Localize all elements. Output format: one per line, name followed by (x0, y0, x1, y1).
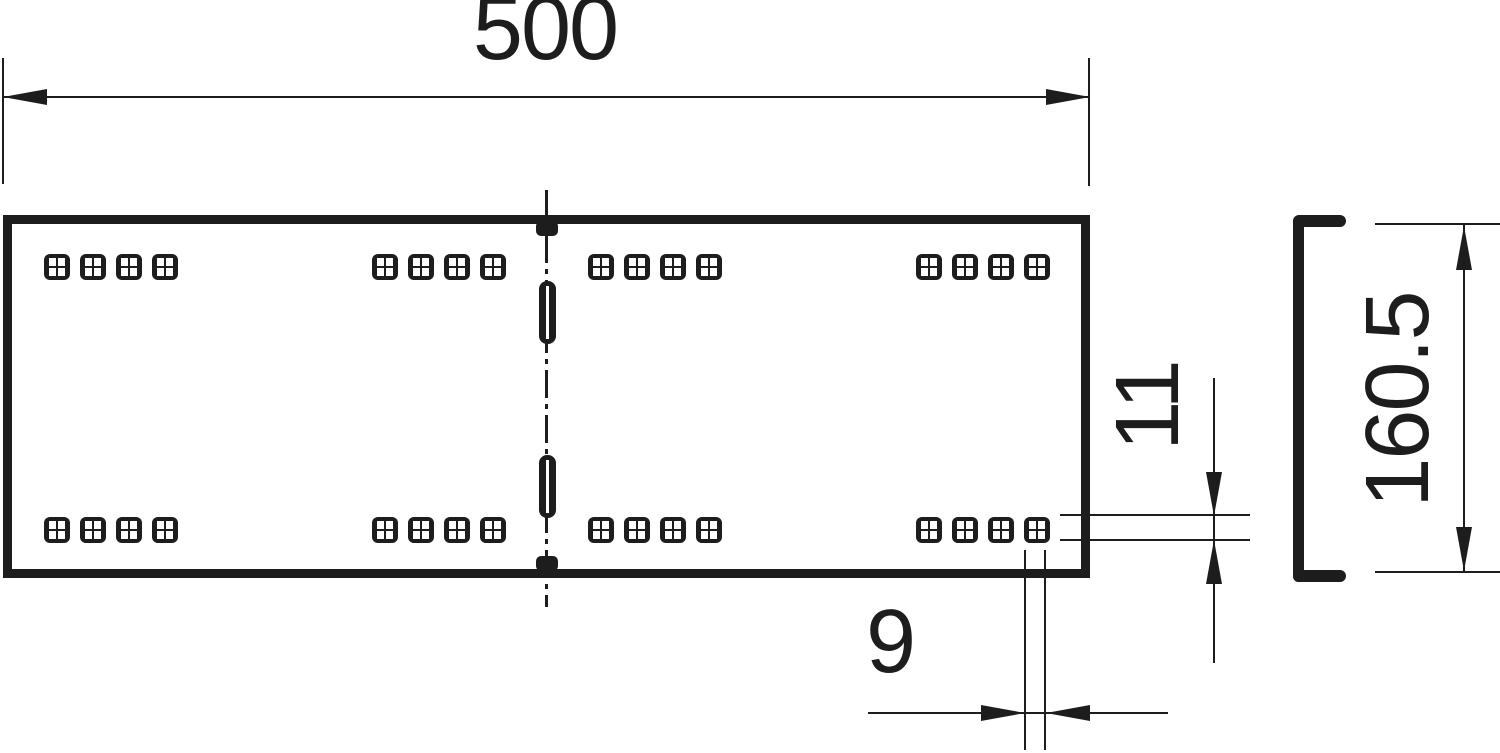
square-perforation (1024, 254, 1050, 280)
square-perforation (480, 517, 506, 543)
joint-centerline (545, 190, 548, 607)
arrowhead-right-icon (1046, 89, 1090, 105)
square-perforation (44, 254, 70, 280)
joint-slot (539, 281, 556, 344)
square-perforation (372, 254, 398, 280)
square-perforation (116, 254, 142, 280)
dimension-line-11 (1213, 378, 1215, 663)
square-perforation (916, 517, 942, 543)
square-perforation (660, 517, 686, 543)
extension-line-9-right (1044, 550, 1046, 750)
side-profile-flange-top (1293, 215, 1346, 227)
square-perforation (444, 517, 470, 543)
square-perforation (80, 254, 106, 280)
square-perforation (116, 517, 142, 543)
arrowhead-down-icon (1456, 527, 1472, 571)
square-perforation (624, 517, 650, 543)
dimension-line-160 (1463, 225, 1465, 572)
dimension-label-9: 9 (855, 597, 925, 687)
arrowhead-up-icon (1206, 540, 1222, 584)
square-perforation (1024, 517, 1050, 543)
square-perforation (588, 517, 614, 543)
seam-tab-top (536, 221, 558, 236)
square-perforation (372, 517, 398, 543)
square-perforation (408, 254, 434, 280)
dimension-label-11: 11 (1103, 346, 1193, 466)
dimension-label-500: 500 (470, 0, 620, 74)
seam-tab-bottom (536, 556, 558, 571)
square-perforation (152, 254, 178, 280)
extension-line-160-bottom (1375, 571, 1500, 573)
square-perforation (952, 254, 978, 280)
arrowhead-right-icon (981, 705, 1025, 721)
square-perforation (408, 517, 434, 543)
square-perforation (696, 254, 722, 280)
square-perforation (696, 517, 722, 543)
extension-line-11-top (1060, 514, 1250, 516)
extension-line-right (1088, 58, 1090, 186)
arrowhead-up-icon (1456, 226, 1472, 270)
square-perforation (480, 254, 506, 280)
square-perforation (624, 254, 650, 280)
square-perforation (988, 517, 1014, 543)
square-perforation (152, 517, 178, 543)
dimension-label-160-5: 160.5 (1353, 285, 1443, 515)
arrowhead-down-icon (1206, 472, 1222, 516)
extension-line-9-left (1024, 550, 1026, 750)
joint-slot (539, 455, 556, 518)
square-perforation (44, 517, 70, 543)
side-profile-flange-bottom (1293, 570, 1346, 582)
drawing-canvas: 500 11 9 160.5 (0, 0, 1500, 753)
square-perforation (988, 254, 1014, 280)
extension-line-left (2, 58, 4, 184)
square-perforation (80, 517, 106, 543)
square-perforation (444, 254, 470, 280)
extension-line-11-bottom (1060, 539, 1250, 541)
arrowhead-left-icon (1046, 705, 1090, 721)
arrowhead-left-icon (3, 89, 47, 105)
extension-line-160-top (1375, 223, 1500, 225)
square-perforation (660, 254, 686, 280)
dimension-line-500 (3, 96, 1090, 98)
square-perforation (952, 517, 978, 543)
square-perforation (588, 254, 614, 280)
side-profile-web (1293, 216, 1304, 582)
square-perforation (916, 254, 942, 280)
